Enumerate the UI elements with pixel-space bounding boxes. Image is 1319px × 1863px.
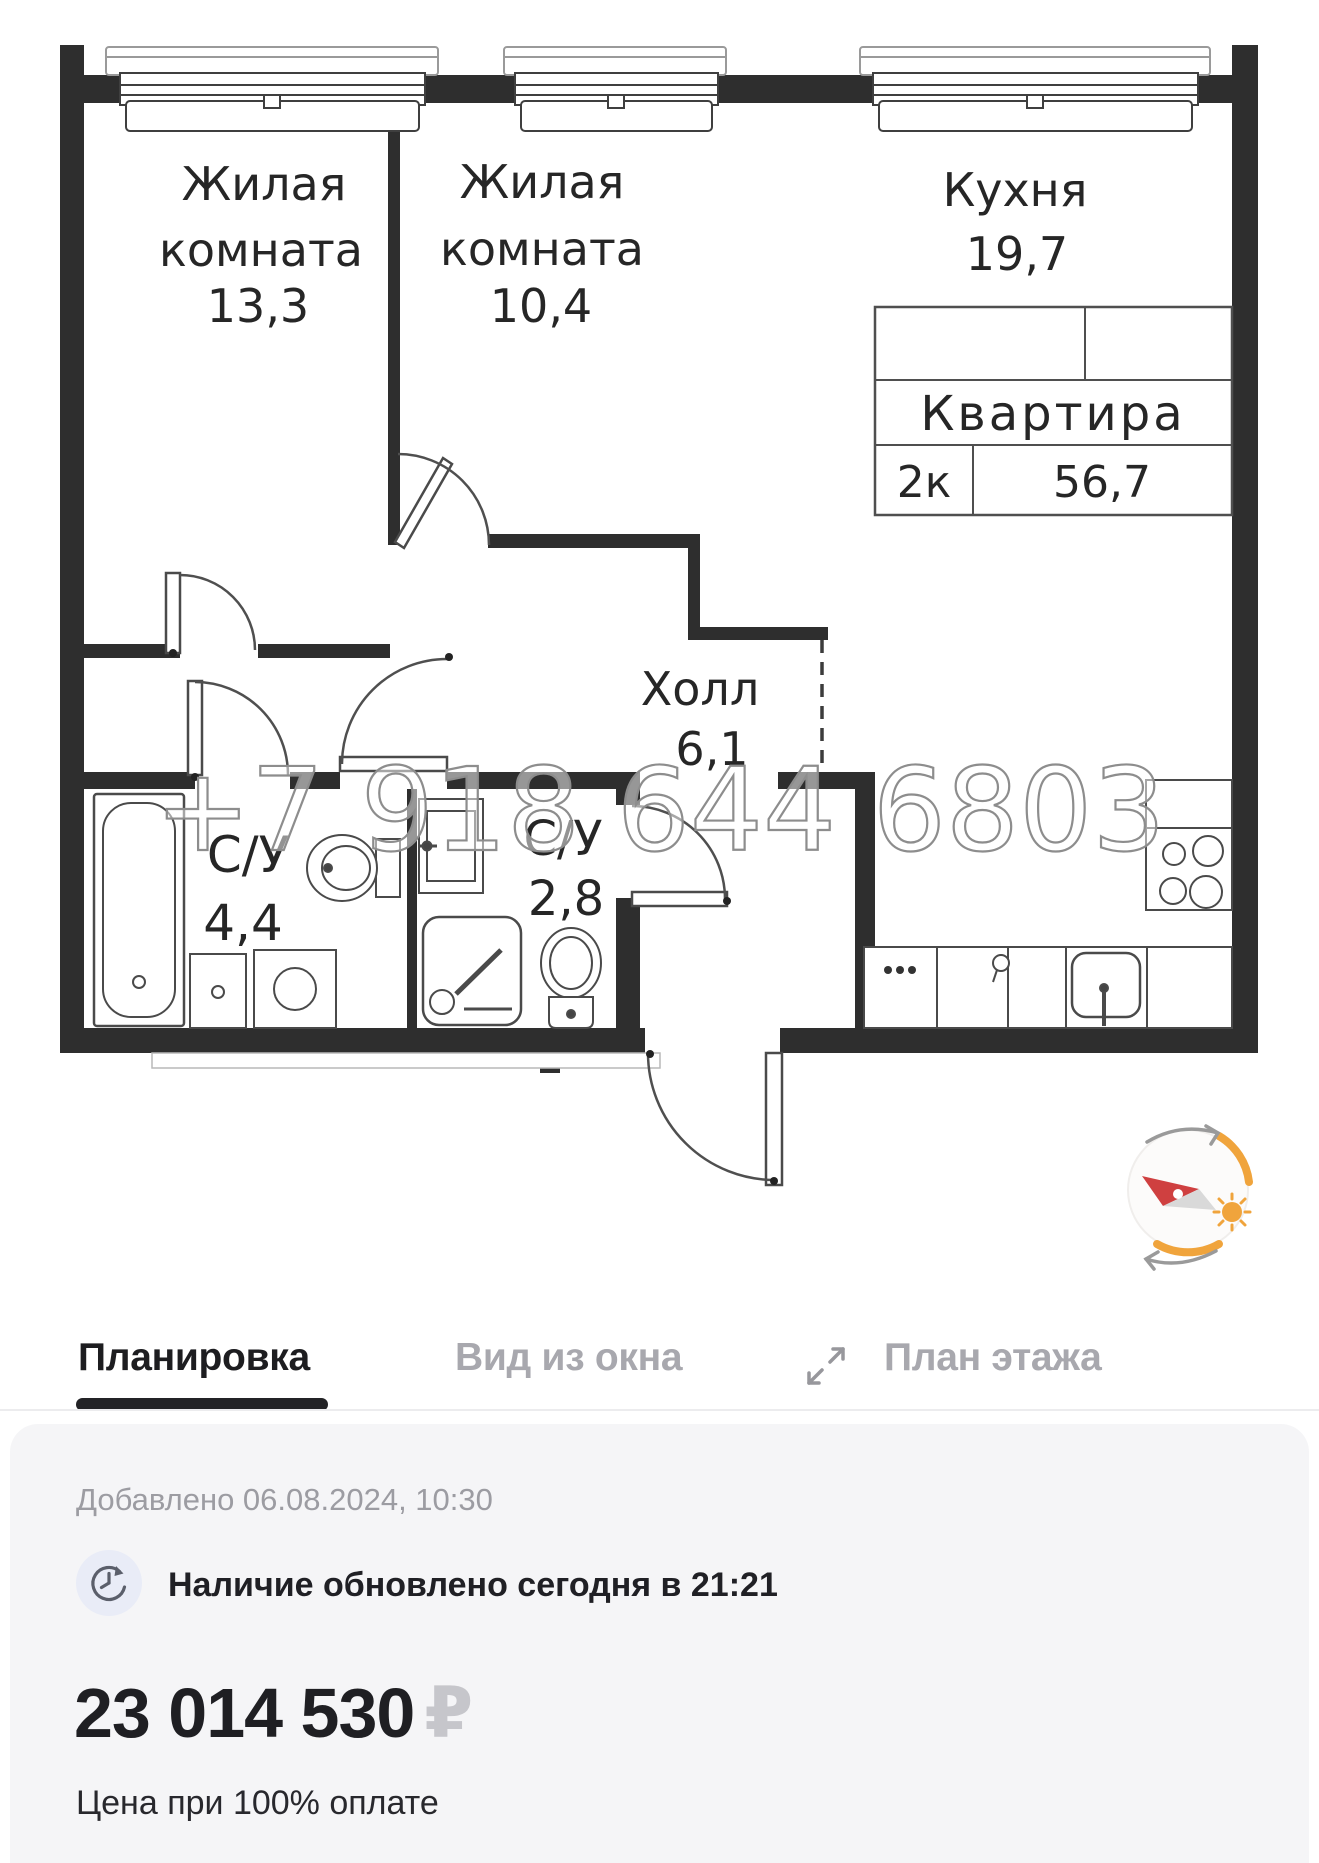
svg-text:13,3: 13,3 xyxy=(207,279,309,333)
ruble-sign: ₽ xyxy=(424,1672,472,1754)
added-date-text: Добавлено 06.08.2024, 10:30 xyxy=(76,1482,493,1518)
svg-text:Жилая: Жилая xyxy=(182,157,347,211)
tab-vid-iz-okna[interactable]: Вид из окна xyxy=(455,1336,682,1380)
svg-text:комната: комната xyxy=(159,223,363,277)
expand-button[interactable] xyxy=(800,1340,852,1392)
tabs-divider xyxy=(0,1409,1319,1411)
price-info-card: Добавлено 06.08.2024, 10:30 Наличие обно… xyxy=(10,1424,1309,1863)
svg-text:Кухня: Кухня xyxy=(943,163,1088,217)
clock-badge xyxy=(76,1550,142,1616)
svg-text:4,4: 4,4 xyxy=(203,894,283,952)
expand-icon xyxy=(800,1340,852,1392)
room2-label: Жилая комната 10,4 xyxy=(440,155,644,333)
svg-text:19,7: 19,7 xyxy=(966,227,1068,281)
entrance-landing xyxy=(152,1053,660,1068)
price: 23 014 530₽ xyxy=(74,1672,472,1754)
windows xyxy=(120,73,1198,131)
svg-text:комната: комната xyxy=(440,222,644,276)
balcony-ledges xyxy=(106,47,1210,75)
table-title: Квартира xyxy=(920,386,1185,442)
tab-planirovka[interactable]: Планировка xyxy=(78,1336,310,1380)
apartment-info-table: Квартира 2к 56,7 xyxy=(875,307,1232,515)
price-note: Цена при 100% оплате xyxy=(76,1784,439,1823)
tab-plan-etazha[interactable]: План этажа xyxy=(884,1336,1102,1380)
svg-text:Холл: Холл xyxy=(641,662,759,716)
listing-page: Квартира 2к 56,7 Жилая комната 13,3 Жила… xyxy=(0,0,1319,1863)
floor-plan[interactable]: Квартира 2к 56,7 Жилая комната 13,3 Жила… xyxy=(0,0,1319,1330)
compass-sun-icon xyxy=(1214,1194,1250,1230)
svg-text:2,8: 2,8 xyxy=(528,871,604,927)
room1-label: Жилая комната 13,3 xyxy=(159,157,363,333)
availability-text: Наличие обновлено сегодня в 21:21 xyxy=(168,1566,778,1605)
svg-text:10,4: 10,4 xyxy=(490,279,592,333)
compass-icon xyxy=(1128,1126,1250,1269)
kitchen-label: Кухня 19,7 xyxy=(943,163,1088,281)
price-value: 23 014 530 xyxy=(74,1674,414,1752)
table-rooms: 2к xyxy=(897,457,952,508)
clock-refresh-icon xyxy=(87,1561,131,1605)
svg-text:Жилая: Жилая xyxy=(460,155,625,209)
table-area: 56,7 xyxy=(1053,457,1151,508)
phone-watermark: +7 918 644 6803 xyxy=(155,744,1166,878)
